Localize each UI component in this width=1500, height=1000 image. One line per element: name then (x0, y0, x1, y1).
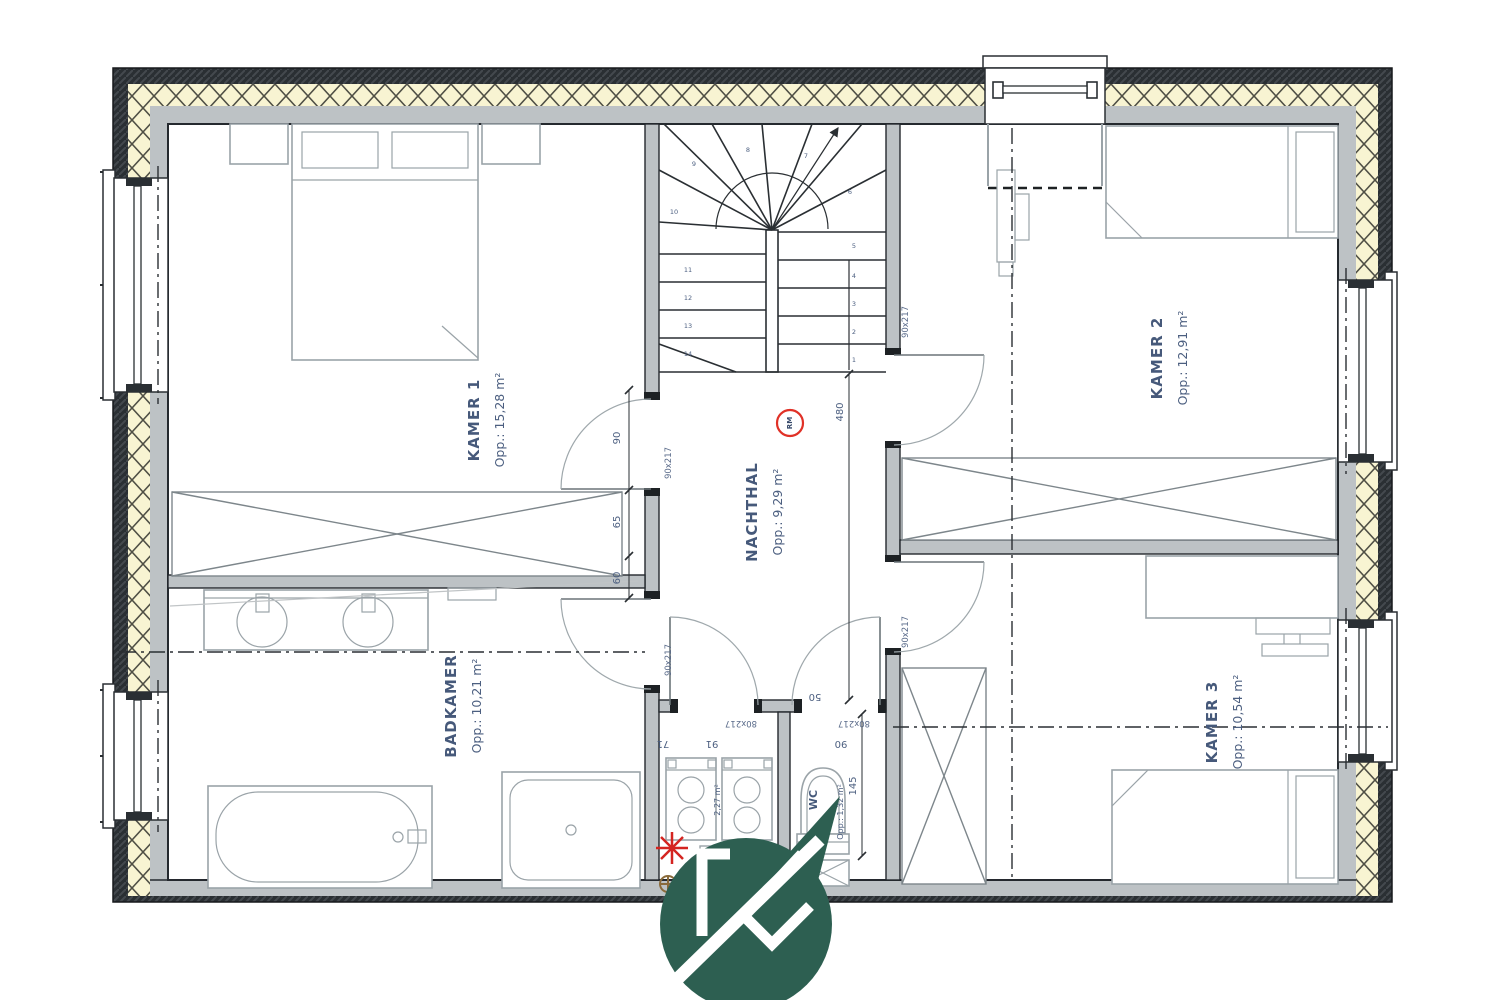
smoke-detector-label: RM (786, 417, 794, 429)
dim-wash-right: 91 (706, 738, 719, 749)
kamer2-closet (902, 458, 1336, 540)
door-label-badkamer: 90x217 (664, 644, 674, 676)
step-number: 7 (804, 152, 808, 160)
step-number: 12 (684, 294, 692, 302)
floorplan-drawing: 1 2 3 4 5 6 7 8 9 10 11 12 13 14 (0, 0, 1500, 1000)
step-number: 2 (852, 328, 856, 336)
step-number: 8 (746, 146, 750, 154)
kamer1-closet (172, 492, 622, 576)
room-area-kamer1: Opp.: 15,28 m² (492, 373, 507, 468)
dim-wc-depth: 145 (848, 776, 859, 795)
bathtub (208, 786, 432, 888)
step-number: 4 (852, 272, 856, 280)
room-area-nachthal: Opp.: 9,29 m² (770, 469, 785, 556)
step-number: 6 (848, 188, 852, 196)
kamer3-closet (902, 668, 986, 884)
window-right-kamer2 (1338, 268, 1397, 474)
room-area-wc: Opp.: 1,32 m² (836, 784, 845, 840)
room-label-nachthal: NACHTHAL (743, 462, 761, 562)
smoke-detector-icon: RM (777, 410, 803, 436)
room-label-badkamer: BADKAMER (442, 654, 460, 757)
step-number: 5 (852, 242, 856, 250)
dim-wash-left: 71 (657, 738, 670, 749)
room-area-washok: 2,27 m² (713, 784, 722, 815)
step-number: 11 (684, 266, 692, 274)
room-label-kamer1: KAMER 1 (465, 379, 483, 462)
window-right-kamer3 (1338, 608, 1397, 772)
dim-hall-length: 480 (835, 402, 846, 421)
room-area-kamer2: Opp.: 12,91 m² (1175, 311, 1190, 406)
kamer3-bed (1112, 770, 1338, 884)
door-label-kamer1: 90x217 (664, 447, 674, 479)
step-number: 14 (684, 350, 692, 358)
room-area-badkamer: Opp.: 10,21 m² (469, 659, 484, 754)
window-left-badkamer (103, 680, 168, 832)
room-area-kamer3: Opp.: 10,54 m² (1230, 675, 1245, 770)
door-label-wc: 80x217 (838, 718, 870, 728)
dim-door-width: 90 (612, 432, 623, 445)
room-label-wc: WC (807, 790, 820, 810)
step-number: 3 (852, 300, 856, 308)
door-label-washok: 80x217 (725, 718, 757, 728)
dim-wc-top: 90 (835, 738, 848, 749)
step-number: 10 (670, 208, 678, 216)
door-label-kamer2: 90x217 (901, 306, 911, 338)
step-number: 1 (852, 356, 856, 364)
door-label-kamer3: 90x217 (901, 616, 911, 648)
dim-hall-seg: 50 (809, 691, 822, 702)
shower (502, 772, 640, 888)
window-left-kamer1 (103, 166, 168, 404)
room-label-kamer3: KAMER 3 (1203, 681, 1221, 764)
dim-seg60: 60 (612, 572, 623, 585)
floorplan-page: 1 2 3 4 5 6 7 8 9 10 11 12 13 14 (0, 0, 1500, 1000)
dim-seg65: 65 (612, 516, 623, 529)
step-number: 9 (692, 160, 696, 168)
room-label-kamer2: KAMER 2 (1148, 317, 1166, 400)
step-number: 13 (684, 322, 692, 330)
kamer2-bed (1106, 126, 1338, 238)
